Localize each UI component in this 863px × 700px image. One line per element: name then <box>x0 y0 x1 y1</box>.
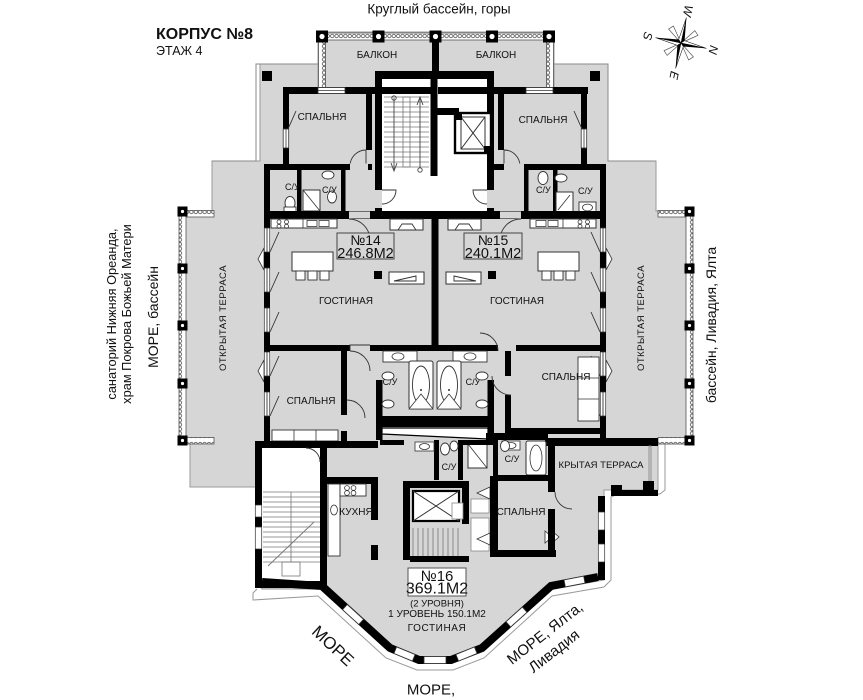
svg-text:МОРЕ, бассейн: МОРЕ, бассейн <box>145 266 161 368</box>
svg-text:ОТКРЫТАЯ ТЕРРАСА: ОТКРЫТАЯ ТЕРРАСА <box>636 265 647 371</box>
svg-text:СПАЛЬНЯ: СПАЛЬНЯ <box>298 112 347 123</box>
svg-text:С/У: С/У <box>285 182 300 192</box>
svg-text:БАЛКОН: БАЛКОН <box>357 50 398 61</box>
svg-text:С/У: С/У <box>578 186 593 196</box>
svg-text:СПАЛЬНЯ: СПАЛЬНЯ <box>287 396 336 407</box>
svg-text:ОТКРЫТАЯ ТЕРРАСА: ОТКРЫТАЯ ТЕРРАСА <box>218 265 229 371</box>
svg-text:КОРПУС №8: КОРПУС №8 <box>156 26 253 43</box>
svg-text:КРЫТАЯ ТЕРРАСА: КРЫТАЯ ТЕРРАСА <box>559 460 645 471</box>
svg-text:БАЛКОН: БАЛКОН <box>476 50 517 61</box>
svg-text:369.1М2: 369.1М2 <box>406 581 468 598</box>
svg-text:С/У: С/У <box>505 454 520 464</box>
svg-text:СПАЛЬНЯ: СПАЛЬНЯ <box>519 115 568 126</box>
svg-text:СПАЛЬНЯ: СПАЛЬНЯ <box>497 507 546 518</box>
svg-text:санаторий Нижняя Ореанда,: санаторий Нижняя Ореанда, <box>104 228 119 399</box>
svg-text:(2 УРОВНЯ): (2 УРОВНЯ) <box>410 599 464 610</box>
svg-text:С/У: С/У <box>536 185 551 195</box>
svg-text:246.8М2: 246.8М2 <box>337 246 393 262</box>
svg-text:храм Покрова Божьей Матери: храм Покрова Божьей Матери <box>119 224 134 404</box>
svg-text:МОРЕ,: МОРЕ, <box>407 682 455 699</box>
svg-text:СПАЛЬНЯ: СПАЛЬНЯ <box>542 372 591 383</box>
svg-text:КУХНЯ: КУХНЯ <box>339 507 372 518</box>
svg-text:1 УРОВЕНЬ 150.1М2: 1 УРОВЕНЬ 150.1М2 <box>388 609 486 620</box>
svg-text:ЭТАЖ 4: ЭТАЖ 4 <box>156 44 203 58</box>
svg-text:С/У: С/У <box>322 185 337 195</box>
svg-text:ГОСТИНАЯ: ГОСТИНАЯ <box>490 296 544 307</box>
svg-text:240.1М2: 240.1М2 <box>465 246 521 262</box>
svg-text:бассейн, Ливадия, Ялта: бассейн, Ливадия, Ялта <box>703 247 719 404</box>
svg-text:С/У: С/У <box>442 462 457 472</box>
svg-text:ГОСТИНАЯ: ГОСТИНАЯ <box>408 623 467 634</box>
svg-text:Круглый бассейн, горы: Круглый бассейн, горы <box>367 2 510 17</box>
svg-text:ГОСТИНАЯ: ГОСТИНАЯ <box>319 296 373 307</box>
